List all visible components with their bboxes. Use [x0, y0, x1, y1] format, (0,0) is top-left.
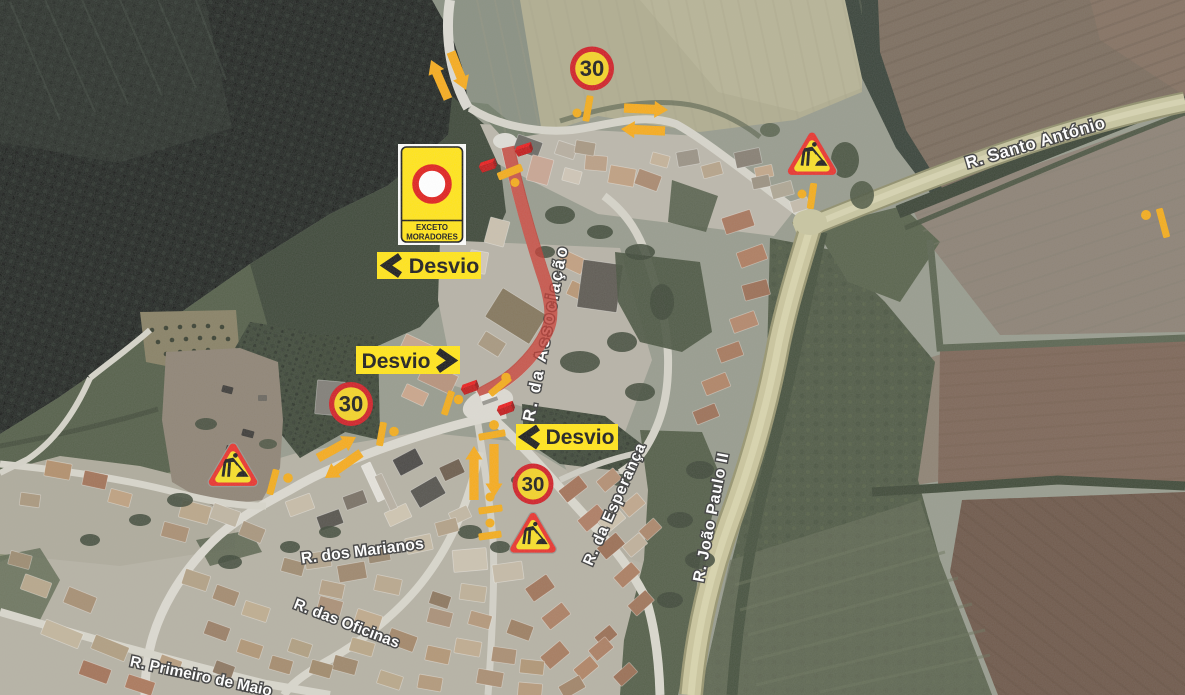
svg-text:Desvio: Desvio	[546, 426, 615, 449]
svg-text:Desvio: Desvio	[362, 350, 431, 373]
svg-text:EXCETO: EXCETO	[416, 223, 448, 232]
svg-text:MORADORES: MORADORES	[406, 233, 458, 242]
svg-text:Desvio: Desvio	[409, 254, 480, 278]
